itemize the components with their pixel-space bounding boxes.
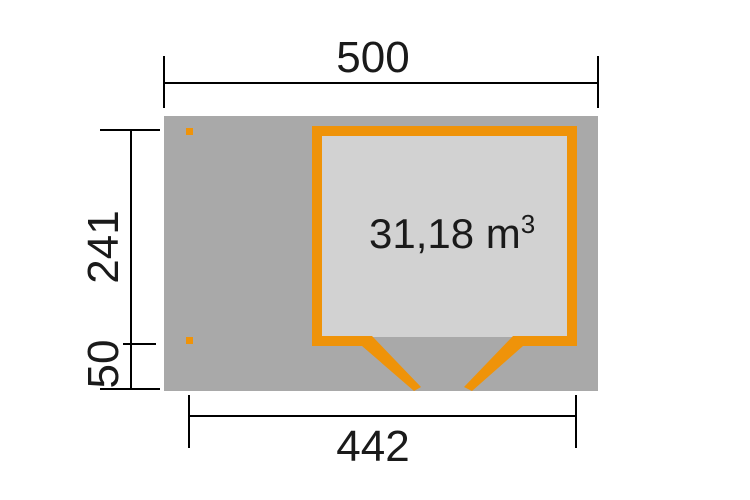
volume-exponent: 3: [521, 209, 535, 239]
dimension-bottom: 442: [189, 395, 576, 471]
dimension-left: 241 50: [79, 130, 160, 389]
dimension-left-upper-label: 241: [79, 210, 128, 283]
volume-label: 31,18 m3: [369, 209, 535, 257]
floor-plan-canvas: 500 442 241 50 31,18 m3: [0, 0, 750, 500]
volume-value: 31,18 m: [369, 210, 521, 257]
floor-plan-diagram: 500 442 241 50 31,18 m3: [0, 0, 750, 500]
dimension-bottom-label: 442: [336, 422, 409, 471]
dimension-left-lower-label: 50: [79, 340, 128, 389]
dimension-top: 500: [164, 33, 598, 108]
dimension-top-label: 500: [336, 33, 409, 82]
post-marker-top: [186, 128, 193, 135]
post-marker-bottom: [186, 337, 193, 344]
